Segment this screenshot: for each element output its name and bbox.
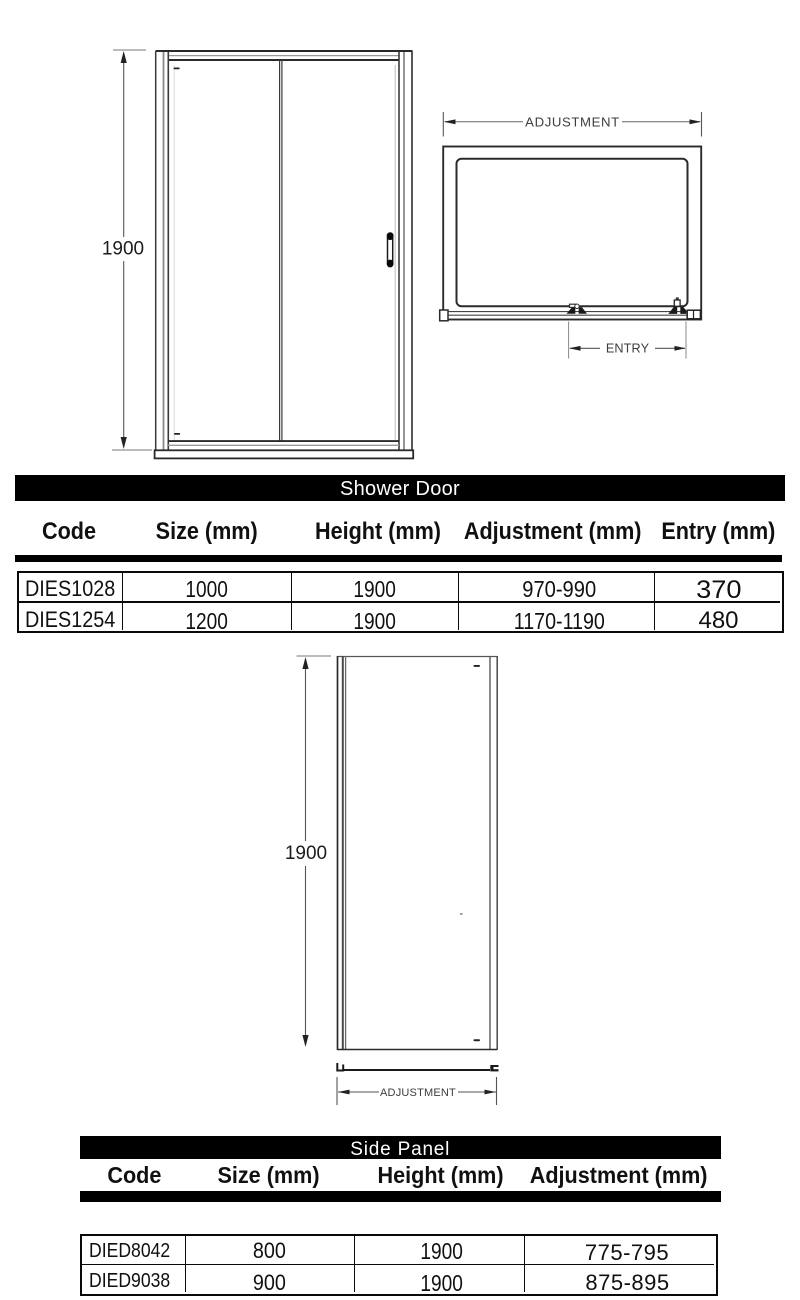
svg-text:ADJUSTMENT: ADJUSTMENT bbox=[525, 114, 620, 129]
svg-text:1900: 1900 bbox=[102, 239, 144, 260]
svg-text:ADJUSTMENT: ADJUSTMENT bbox=[380, 1087, 456, 1099]
svg-text:ENTRY: ENTRY bbox=[606, 342, 650, 356]
svg-text:1900: 1900 bbox=[285, 843, 327, 864]
